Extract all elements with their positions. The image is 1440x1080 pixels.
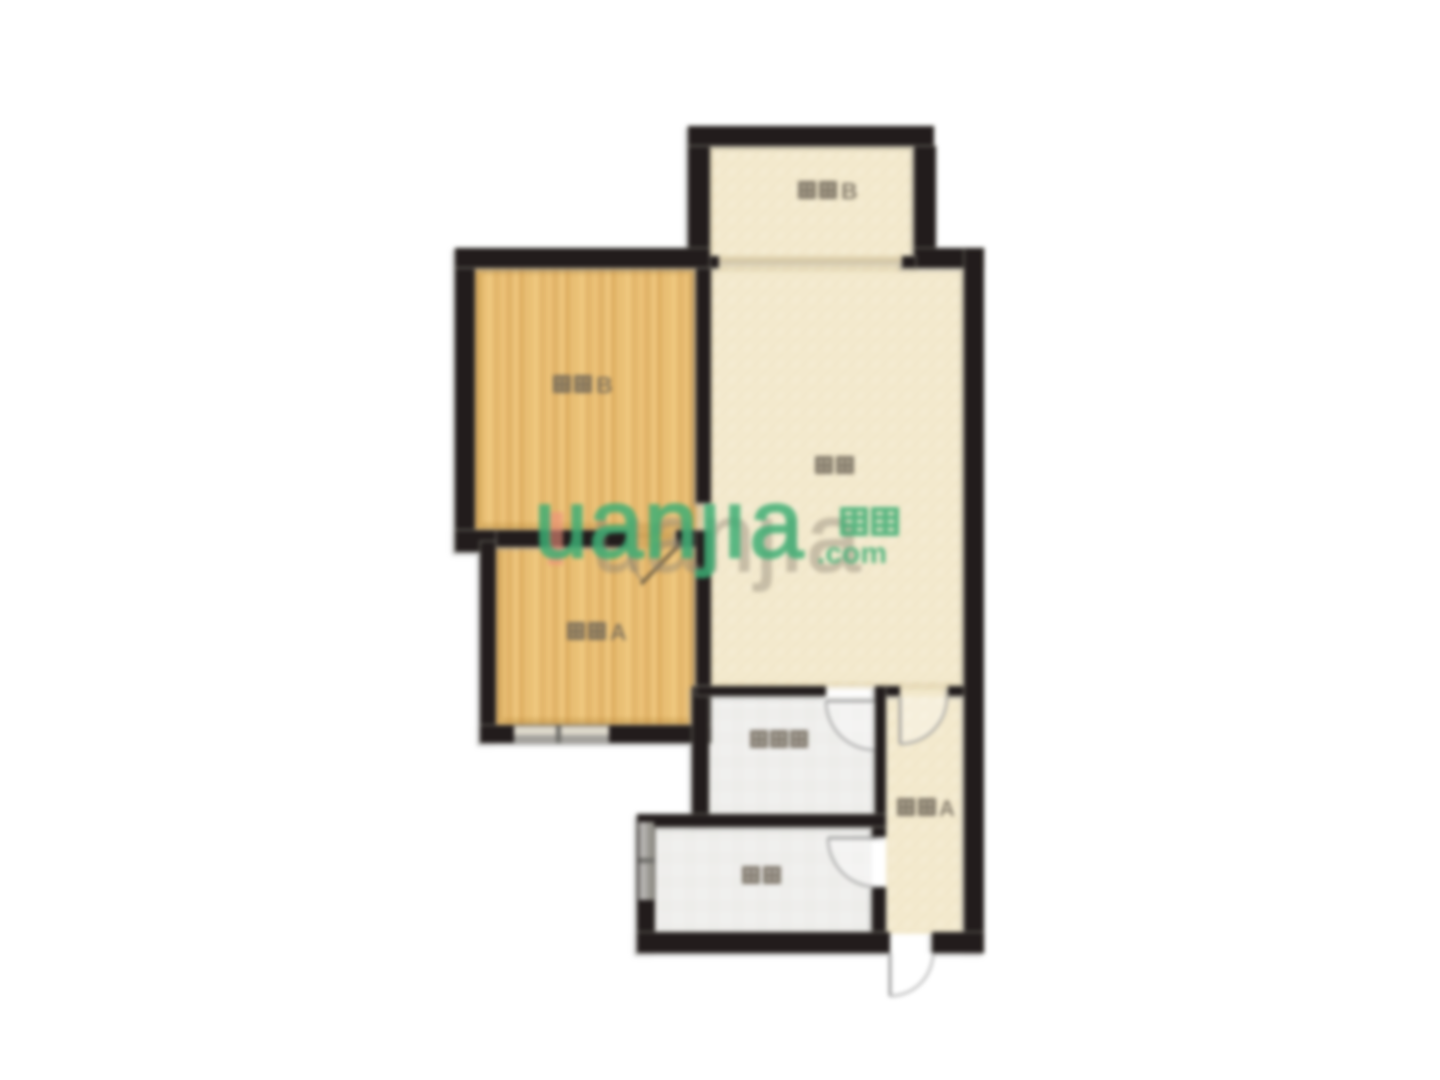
svg-text:B: B — [596, 372, 613, 398]
svg-text:.com: .com — [817, 537, 887, 570]
svg-text:A: A — [939, 796, 955, 821]
svg-text:B: B — [841, 178, 858, 204]
svg-text:uanȷıa: uanȷıa — [534, 469, 804, 578]
svg-text:A: A — [610, 619, 627, 645]
